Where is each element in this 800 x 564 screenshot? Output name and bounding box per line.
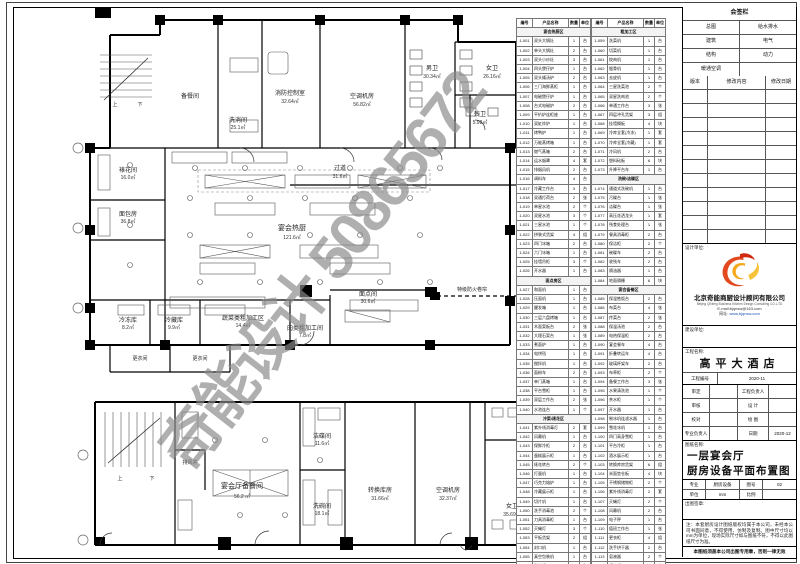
cell: 1-065 bbox=[592, 92, 608, 101]
cell: 1-038 bbox=[517, 387, 533, 396]
discipline-row: 建筑电气 bbox=[683, 35, 796, 49]
empty-cell bbox=[766, 146, 796, 159]
signoff-row: 审定工程负责人 bbox=[683, 385, 796, 399]
cell: 餐具消毒柜 bbox=[608, 230, 644, 239]
section-cell: 宴会备餐区 bbox=[592, 285, 666, 294]
cell: 3 bbox=[644, 377, 655, 386]
cell: 1-103 bbox=[592, 460, 608, 469]
cell: 张 bbox=[655, 203, 666, 212]
cell: 1 bbox=[644, 74, 655, 83]
table-row: 1-021三星水池1个 bbox=[517, 221, 591, 230]
cell: 万能蒸烤箱 bbox=[533, 138, 569, 147]
cell: 冷库全套(冷藏) bbox=[608, 138, 644, 147]
table-row: 1-011烤鸭炉1台 bbox=[517, 129, 591, 138]
cell: 2 bbox=[569, 368, 580, 377]
cell: 1-035 bbox=[517, 359, 533, 368]
empty-cell bbox=[683, 104, 708, 117]
cell: 2 bbox=[569, 506, 580, 515]
cell: 蛋糕展示柜 bbox=[533, 451, 569, 460]
kitchen-equipment bbox=[98, 52, 430, 322]
cell: 1-060 bbox=[592, 46, 608, 55]
room-label: 更衣间 bbox=[132, 355, 147, 362]
cell: 台 bbox=[655, 405, 666, 414]
cell: 1 bbox=[644, 212, 655, 221]
room-label: 冷藏库 bbox=[165, 316, 183, 324]
cell: 电子秤 bbox=[608, 515, 644, 524]
grid-bubbles-lower bbox=[78, 450, 88, 545]
cell: 台 bbox=[655, 331, 666, 340]
spec-row: 专业厨房设备图号02 bbox=[683, 480, 796, 490]
cell: 2 bbox=[569, 534, 580, 543]
room-label: 面包房 bbox=[119, 210, 137, 218]
cell: 台 bbox=[655, 230, 666, 239]
table-row: 1-096茶水柜1个 bbox=[592, 396, 666, 405]
empty-cell bbox=[708, 174, 766, 187]
cell: 台 bbox=[580, 368, 591, 377]
cell: 切菜机 bbox=[608, 46, 644, 55]
cell: 套 bbox=[580, 423, 591, 432]
cell: 台 bbox=[580, 46, 591, 55]
room-label: 过道 bbox=[334, 164, 346, 172]
table-row: 1-029醒发箱1台 bbox=[517, 304, 591, 313]
cell: 1-023 bbox=[517, 239, 533, 248]
cell: 1-067 bbox=[592, 111, 608, 120]
empty-cell bbox=[683, 174, 708, 187]
table-row: 1-062锯骨机1台 bbox=[592, 65, 666, 74]
table-row: 1-079餐具消毒柜2台 bbox=[592, 230, 666, 239]
table-row: 1-019单星水池2个 bbox=[517, 203, 591, 212]
cell: 1-100 bbox=[592, 433, 608, 442]
cell: 2 bbox=[644, 479, 655, 488]
cell: 保温汤池 bbox=[608, 322, 644, 331]
cell: 台 bbox=[580, 313, 591, 322]
discipline-cell: 建筑 bbox=[683, 35, 740, 48]
table-row: 1-042风幕机1台 bbox=[517, 433, 591, 442]
cell: 1 bbox=[644, 442, 655, 451]
cell: 1-052 bbox=[517, 525, 533, 534]
svg-text:16.0㎡: 16.0㎡ bbox=[121, 174, 136, 181]
cell: 1-018 bbox=[517, 193, 533, 202]
spec-label: 图号 bbox=[740, 480, 763, 489]
table-row: 1-066单通工作台3张 bbox=[592, 101, 666, 110]
cell: 1-006 bbox=[517, 83, 533, 92]
table-row: 1-007电磁煲仔炉1台 bbox=[517, 92, 591, 101]
cell: 2 bbox=[569, 322, 580, 331]
cell: 6 bbox=[644, 157, 655, 166]
cell: 组 bbox=[655, 111, 666, 120]
col-header: 单位 bbox=[655, 19, 666, 28]
cell: 1-001 bbox=[517, 37, 533, 46]
company-website: 网址: www.bjqnsw.com bbox=[683, 311, 796, 317]
cell: 台 bbox=[580, 37, 591, 46]
title-block: 会签栏 总图给水排水建筑电气结构动力暖通空调 版本 修改内容 修改日期 设计单位… bbox=[682, 7, 796, 557]
cell: 灭蝇灯 bbox=[533, 525, 569, 534]
cell: 个 bbox=[655, 479, 666, 488]
cell: 个 bbox=[580, 506, 591, 515]
signoff-label: 绘 图 bbox=[738, 413, 769, 426]
cell: 2 bbox=[644, 368, 655, 377]
svg-text:30.34㎡: 30.34㎡ bbox=[423, 73, 441, 80]
cell: 4 bbox=[569, 175, 580, 184]
empty-cell bbox=[708, 230, 766, 243]
owner-section: 建设单位: bbox=[683, 326, 796, 348]
cell: 1-042 bbox=[517, 433, 533, 442]
empty-cell bbox=[766, 160, 796, 173]
col-header: 数量 bbox=[644, 19, 655, 28]
revision-empty-row bbox=[683, 90, 796, 104]
cell: 1-028 bbox=[517, 295, 533, 304]
cell: 台 bbox=[580, 129, 591, 138]
upper-plan-walls bbox=[90, 20, 516, 372]
cell: 1-033 bbox=[517, 341, 533, 350]
table-row: 1-059洗菜机1台 bbox=[592, 37, 666, 46]
cell: 台 bbox=[580, 515, 591, 524]
cell: 污碟台 bbox=[608, 193, 644, 202]
empty-cell bbox=[683, 216, 708, 229]
cell: 3 bbox=[644, 111, 655, 120]
cell: 1-026 bbox=[517, 267, 533, 276]
cell: 1-055 bbox=[517, 552, 533, 561]
cell: 烤鸭炉 bbox=[533, 129, 569, 138]
empty-cell bbox=[766, 118, 796, 131]
table-row: 1-108风幕机2台 bbox=[592, 506, 666, 515]
cell: 排烟风机 bbox=[533, 166, 569, 175]
cell: 1 bbox=[569, 65, 580, 74]
empty-cell bbox=[708, 90, 766, 103]
owner-label: 建设单位: bbox=[683, 326, 796, 334]
cell: 1-093 bbox=[592, 368, 608, 377]
table-row: 1-025挂墙吊柜3个 bbox=[517, 258, 591, 267]
cell: 台 bbox=[655, 423, 666, 432]
empty-cell bbox=[683, 118, 708, 131]
cell: 双通打荷台 bbox=[533, 193, 569, 202]
cell: 1-062 bbox=[592, 65, 608, 74]
cell: 台 bbox=[580, 469, 591, 478]
table-row: 1-047巧克力熔炉1台 bbox=[517, 479, 591, 488]
restroom-fixtures bbox=[410, 50, 498, 116]
cell: 风幕机 bbox=[533, 433, 569, 442]
cell: 收残车 bbox=[608, 258, 644, 267]
cell: 个 bbox=[655, 552, 666, 561]
svg-text:56.82㎡: 56.82㎡ bbox=[353, 101, 371, 108]
table-row: 1-097开水器1台 bbox=[592, 405, 666, 414]
cell: 2 bbox=[569, 239, 580, 248]
cell: 1 bbox=[569, 341, 580, 350]
cell: 1-089 bbox=[592, 331, 608, 340]
cell: 拼装式货架 bbox=[533, 230, 569, 239]
cell: 台 bbox=[580, 350, 591, 359]
empty-cell bbox=[766, 104, 796, 117]
empty-cell bbox=[683, 160, 708, 173]
cell: 四门高身雪柜 bbox=[608, 433, 644, 442]
cell: 1-051 bbox=[517, 515, 533, 524]
notes-section: 注：本套厨房设计图纸版权均属于本公司，未经本公司书面同意，不得使用、仿制及复制。… bbox=[683, 520, 796, 557]
cell: 台 bbox=[655, 543, 666, 552]
revision-header-row: 版本 修改内容 修改日期 bbox=[683, 76, 796, 90]
cell: 4 bbox=[644, 304, 655, 313]
signoff-row: 校对绘 图 bbox=[683, 413, 796, 427]
cell: 1 bbox=[644, 193, 655, 202]
cell: 组 bbox=[580, 534, 591, 543]
cell: 台 bbox=[580, 552, 591, 561]
room-label: 裱花间 bbox=[119, 166, 137, 174]
cell: 个 bbox=[580, 460, 591, 469]
cell: 布草柜 bbox=[608, 368, 644, 377]
cell: 1-044 bbox=[517, 451, 533, 460]
empty-cell bbox=[708, 188, 766, 201]
empty-cell bbox=[766, 132, 796, 145]
table-row: 1-085保温售饭台2台 bbox=[592, 295, 666, 304]
cell: 台 bbox=[655, 295, 666, 304]
cell: 平板货架 bbox=[533, 534, 569, 543]
cell: 值班工作台 bbox=[608, 525, 644, 534]
cell: 去皮机 bbox=[608, 74, 644, 83]
project-no-value: 2020-11 bbox=[718, 373, 796, 384]
cell: 塑料砧板 bbox=[608, 157, 644, 166]
cell: 1 bbox=[644, 129, 655, 138]
table-row: 1-023四门冰箱2台 bbox=[517, 239, 591, 248]
discipline-cell: 电气 bbox=[740, 35, 796, 48]
table-row: 1-034电饼铛1台 bbox=[517, 350, 591, 359]
room-label: 男卫 bbox=[426, 65, 438, 72]
empty-cell bbox=[708, 160, 766, 173]
table-row: 1-067四层冲孔货架3组 bbox=[592, 111, 666, 120]
table-row: 1-095水果清洗池1个 bbox=[592, 387, 666, 396]
cell: 大理石案台 bbox=[533, 331, 569, 340]
website-url[interactable]: www.bjqnsw.com bbox=[729, 311, 759, 316]
cell: 洗手烘干器 bbox=[608, 543, 644, 552]
table-row: 1-049切片机1台 bbox=[517, 497, 591, 506]
table-row: 1-040水池连台1个 bbox=[517, 405, 591, 414]
cell: 张 bbox=[655, 313, 666, 322]
spec-row: 单位mm比例 bbox=[683, 490, 796, 499]
cell: 1-003 bbox=[517, 55, 533, 64]
cell: 1-097 bbox=[592, 405, 608, 414]
cell: 块 bbox=[655, 120, 666, 129]
project-name: 高平大酒店 bbox=[683, 356, 796, 372]
cell: 台 bbox=[580, 166, 591, 175]
cell: 双头大锅灶 bbox=[533, 37, 569, 46]
signoff-label: 审定 bbox=[683, 385, 710, 398]
spec-value: mm bbox=[706, 490, 740, 499]
sheet-title-line1: 一层宴会厅 bbox=[683, 449, 796, 464]
signoff-label: 设 计 bbox=[738, 399, 769, 412]
cell: 运水烟罩 bbox=[533, 157, 569, 166]
table-row: 1-107灭蝇灯2个 bbox=[592, 497, 666, 506]
cell: 1-039 bbox=[517, 396, 533, 405]
cell: 台 bbox=[655, 74, 666, 83]
cell: 台 bbox=[580, 101, 591, 110]
shaft-block bbox=[95, 8, 111, 18]
stamp-section: 出图签章: bbox=[683, 500, 796, 520]
empty-cell bbox=[708, 202, 766, 215]
cell: 1 bbox=[569, 313, 580, 322]
revision-col: 修改日期 bbox=[766, 76, 796, 89]
cell: 1-050 bbox=[517, 506, 533, 515]
cell: 2 bbox=[644, 295, 655, 304]
cell: 4 bbox=[644, 120, 655, 129]
table-row: 1-006三门海鲜蒸柜1台 bbox=[517, 83, 591, 92]
room-label: 残卫 bbox=[474, 110, 486, 118]
empty-cell bbox=[708, 216, 766, 229]
cell: 封口机 bbox=[533, 543, 569, 552]
cell: 2 bbox=[644, 83, 655, 92]
stairs-up-label: 上 bbox=[117, 475, 122, 482]
cell: 1-102 bbox=[592, 451, 608, 460]
cell: 面粉车 bbox=[533, 368, 569, 377]
cell: 4 bbox=[569, 230, 580, 239]
cell: 台 bbox=[655, 350, 666, 359]
cell: 台 bbox=[580, 451, 591, 460]
cell: 台 bbox=[580, 285, 591, 294]
cell: 开水器 bbox=[533, 267, 569, 276]
table-row: 冷菜/裱花区 bbox=[517, 414, 591, 423]
cell: 1 bbox=[569, 479, 580, 488]
table-row: 1-030三层六盘烤箱1台 bbox=[517, 313, 591, 322]
cell: 茶水柜 bbox=[608, 396, 644, 405]
cell: 1-004 bbox=[517, 65, 533, 74]
project-section: 工程名称: 高平大酒店 工程编号 2020-11 bbox=[683, 348, 796, 385]
table-row: 1-013燃气蒸箱2台 bbox=[517, 147, 591, 156]
cell: 张 bbox=[655, 193, 666, 202]
cell: 平台冷柜 bbox=[608, 442, 644, 451]
table-row: 1-074通道式洗碗机1台 bbox=[592, 184, 666, 193]
cell: 1 bbox=[569, 37, 580, 46]
cell: 1 bbox=[644, 138, 655, 147]
discipline-cell: 暖通空调 bbox=[683, 63, 740, 76]
cell: 1 bbox=[569, 267, 580, 276]
cell: 1 bbox=[569, 92, 580, 101]
cell: 1-068 bbox=[592, 120, 608, 129]
cell: 冷风机 bbox=[608, 147, 644, 156]
cell: 双星水池 bbox=[533, 212, 569, 221]
cell: 台 bbox=[655, 184, 666, 193]
table-row: 1-083隔油器1台 bbox=[592, 267, 666, 276]
cell: 套 bbox=[655, 138, 666, 147]
cell: 1 bbox=[569, 497, 580, 506]
cell: 4 bbox=[644, 534, 655, 543]
cell: 更衣柜 bbox=[608, 534, 644, 543]
door-arcs-lower bbox=[100, 531, 472, 550]
cell: 台 bbox=[580, 120, 591, 129]
cell: 台式电磁炉 bbox=[533, 101, 569, 110]
table-row: 1-028压面机1台 bbox=[517, 295, 591, 304]
revision-empty-row bbox=[683, 202, 796, 216]
cell: 组 bbox=[655, 460, 666, 469]
cell: 1 bbox=[644, 267, 655, 276]
cell: 1 bbox=[569, 405, 580, 414]
cell: 2 bbox=[569, 46, 580, 55]
signoff-value bbox=[769, 413, 796, 426]
cell: 2 bbox=[644, 331, 655, 340]
table-row: 1-093布草柜2个 bbox=[592, 368, 666, 377]
svg-text:18.1㎡: 18.1㎡ bbox=[315, 510, 330, 517]
cell: 1 bbox=[644, 525, 655, 534]
table-row: 1-050洗手消毒池2个 bbox=[517, 506, 591, 515]
drawing-sheet: { "watermark": "奇能设计 50865672", "signatu… bbox=[0, 0, 800, 564]
cell: 1-087 bbox=[592, 313, 608, 322]
cell: 1-009 bbox=[517, 111, 533, 120]
cell: 2 bbox=[644, 249, 655, 258]
svg-text:32.64㎡: 32.64㎡ bbox=[281, 98, 299, 105]
section-cell: 粗加工区 bbox=[592, 28, 666, 37]
room-label: 冷冻库 bbox=[119, 316, 137, 324]
table-row: 1-038平台雪柜1台 bbox=[517, 387, 591, 396]
table-row: 1-061绞肉机1台 bbox=[592, 55, 666, 64]
cell: 1-043 bbox=[517, 442, 533, 451]
col-header: 编号 bbox=[517, 19, 533, 28]
table-row: 1-099雪花冰机1台 bbox=[592, 423, 666, 432]
cell: 1 bbox=[644, 221, 655, 230]
cell: 套 bbox=[655, 129, 666, 138]
cell: 单星水池 bbox=[533, 203, 569, 212]
cell: 四头煲仔炉 bbox=[533, 65, 569, 74]
table-row: 1-015排烟风机2台 bbox=[517, 166, 591, 175]
cell: 1 bbox=[569, 295, 580, 304]
sheet-title-label: 图纸名称: bbox=[683, 441, 796, 449]
cell: 压面机 bbox=[533, 295, 569, 304]
cell: 1-063 bbox=[592, 74, 608, 83]
svg-text:31.6㎡: 31.6㎡ bbox=[333, 173, 348, 180]
room-label: 空调机房 bbox=[436, 486, 460, 494]
cell: 1-019 bbox=[517, 203, 533, 212]
cell: 台 bbox=[655, 359, 666, 368]
signoff-value bbox=[710, 399, 738, 412]
cell: 打蛋机 bbox=[533, 469, 569, 478]
upper-stairs bbox=[100, 55, 152, 100]
cell: 洗手消毒池 bbox=[533, 506, 569, 515]
cell: 通道式洗碗机 bbox=[608, 184, 644, 193]
table-row: 1-078残食处理台1张 bbox=[592, 221, 666, 230]
cell: 1 bbox=[644, 396, 655, 405]
sheet-spec-section: 专业厨房设备图号02单位mm比例 bbox=[683, 480, 796, 500]
table-row: 1-055真空包装机1台 bbox=[517, 552, 591, 561]
company-logo bbox=[683, 250, 796, 292]
table-row: 1-046打蛋机1台 bbox=[517, 469, 591, 478]
cell: 单通工作台 bbox=[608, 101, 644, 110]
cell: 1 bbox=[644, 515, 655, 524]
cell: 1-030 bbox=[517, 313, 533, 322]
cell: 个 bbox=[655, 239, 666, 248]
table-row: 1-084地面隔栅6块 bbox=[592, 276, 666, 285]
cell: 1-053 bbox=[517, 534, 533, 543]
table-row: 1-018双通打荷台2张 bbox=[517, 193, 591, 202]
cell: 1-025 bbox=[517, 258, 533, 267]
cell: 台 bbox=[655, 451, 666, 460]
table-row: 1-036面粉车2台 bbox=[517, 368, 591, 377]
cell: 台 bbox=[580, 55, 591, 64]
cell: 个 bbox=[580, 203, 591, 212]
cell: 1-047 bbox=[517, 479, 533, 488]
cell: 台 bbox=[655, 267, 666, 276]
svg-text:8.2㎡: 8.2㎡ bbox=[122, 324, 134, 331]
cell: 套 bbox=[655, 488, 666, 497]
cell: 1-078 bbox=[592, 221, 608, 230]
cell: 2 bbox=[644, 230, 655, 239]
cell: 6 bbox=[644, 276, 655, 285]
table-row: 1-043保鲜冷柜2台 bbox=[517, 442, 591, 451]
cell: 个 bbox=[580, 258, 591, 267]
cell: 保温售饭台 bbox=[608, 295, 644, 304]
project-label: 工程名称: bbox=[683, 348, 796, 356]
table-row: 1-091折叠转运车4台 bbox=[592, 350, 666, 359]
cell: 套 bbox=[580, 157, 591, 166]
svg-text:121.6㎡: 121.6㎡ bbox=[283, 234, 301, 241]
empty-cell bbox=[766, 216, 796, 229]
empty-cell bbox=[683, 146, 708, 159]
revision-empty-row bbox=[683, 118, 796, 132]
cell: 台 bbox=[580, 184, 591, 193]
